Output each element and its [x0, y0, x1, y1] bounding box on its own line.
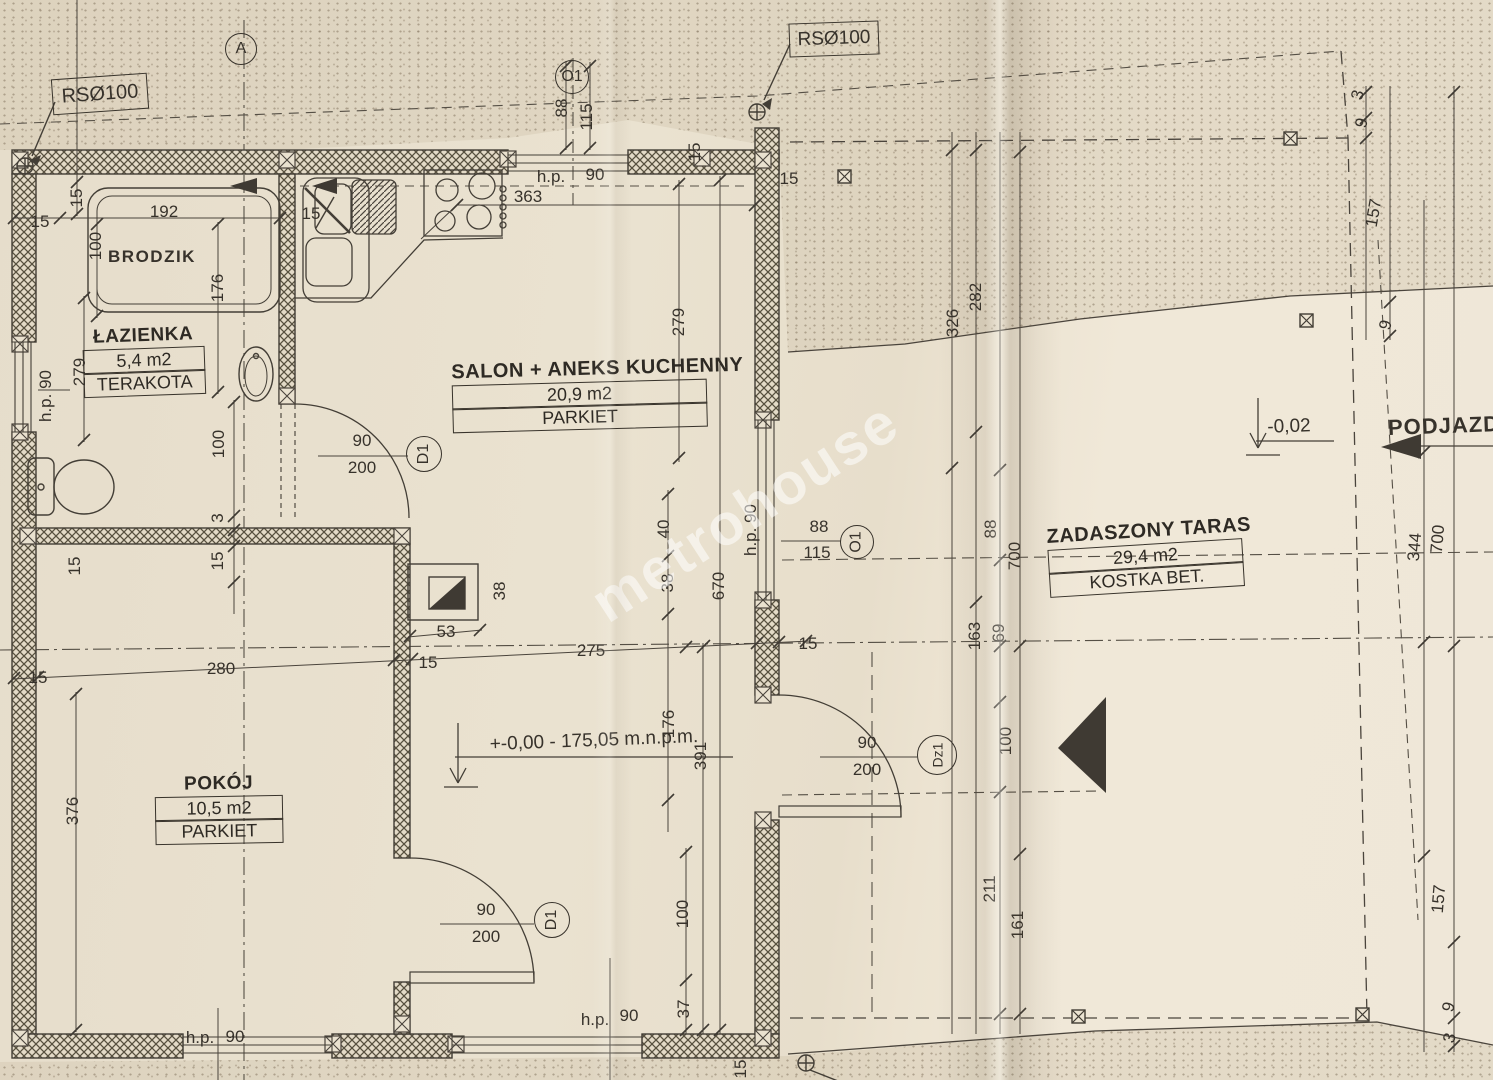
dimension-label: 157 — [1428, 884, 1450, 914]
dimension-label: 363 — [514, 187, 542, 207]
dimension-label: 275 — [577, 641, 605, 661]
dimension-label: 100 — [86, 232, 106, 260]
dimension-label: 163 — [965, 622, 985, 650]
dimension-label: 326 — [943, 309, 963, 337]
door-width-label: 90 — [858, 733, 877, 753]
axis-marker-d1: D1 — [534, 902, 570, 938]
axis-marker-label: D1 — [415, 444, 433, 464]
door-height-label: 200 — [348, 458, 376, 478]
dimension-label: 15 — [419, 653, 438, 673]
room-label-taras: ZADASZONY TARAS 29,4 m2 KOSTKA BET. — [1046, 514, 1245, 598]
dimension-label: 100 — [673, 900, 693, 928]
dimension-label: 15 — [302, 204, 321, 224]
dimension-label: 9 — [1375, 318, 1397, 332]
room-label-salon: SALON + ANEKS KUCHENNY 20,9 m2 PARKIET — [451, 355, 708, 434]
axis-marker-label: Dz1 — [929, 743, 945, 768]
dimension-label: 3 — [1439, 1031, 1461, 1045]
dimension-label: 9 — [1351, 116, 1373, 130]
axis-marker-a: A — [225, 33, 257, 65]
dimension-label: h.p. — [186, 1028, 214, 1048]
dimension-label: 670 — [709, 572, 729, 600]
dimension-label: 15 — [31, 212, 50, 232]
dimension-label: 391 — [691, 742, 711, 770]
dimension-label: 90 — [586, 165, 605, 185]
door-height-label: 200 — [472, 927, 500, 947]
dimension-label: 192 — [150, 202, 178, 222]
room-name: ŁAZIENKA — [82, 323, 205, 349]
dimension-label: h.p. 90 — [36, 370, 56, 422]
axis-marker-label: D1 — [543, 910, 561, 930]
dimension-label: 90 — [620, 1006, 639, 1026]
dimension-label: 15 — [731, 1060, 751, 1079]
dimension-label: h.p. — [581, 1010, 609, 1030]
dimension-label: 15 — [799, 634, 818, 654]
door-height-label: 200 — [853, 760, 881, 780]
axis-marker-label: O1 — [561, 68, 582, 86]
dimension-label: h.p. — [537, 167, 565, 187]
axis-marker-d1: D1 — [406, 436, 442, 472]
drain-label-top-left: RSØ100 — [51, 73, 149, 116]
dimension-label: 280 — [207, 659, 235, 679]
door-width-label: 90 — [477, 900, 496, 920]
dimension-label: 3 — [1347, 88, 1369, 102]
dimension-label: 279 — [669, 308, 689, 336]
axis-marker-dz1: Dz1 — [917, 735, 957, 775]
dimension-label: 37 — [674, 1000, 694, 1019]
axis-marker-label: O1 — [848, 531, 866, 552]
elevation-label-terrace: -0,02 — [1267, 415, 1311, 438]
dimension-label: 88 — [810, 517, 829, 537]
dimension-label: 15 — [67, 189, 87, 208]
dimension-label: 69 — [989, 624, 1009, 643]
dimension-label: 88 — [981, 520, 1001, 539]
room-floor: PARKIET — [155, 818, 283, 845]
floor-plan-photo: RSØ100 RSØ100 BRODZIK ŁAZIENKA 5,4 m2 TE… — [0, 0, 1493, 1080]
dimension-label: 3 — [208, 513, 228, 522]
dimension-label: 115 — [577, 103, 597, 130]
dimension-label: 161 — [1008, 911, 1028, 939]
dimension-label: 700 — [1427, 524, 1449, 554]
axis-marker-o1: O1 — [840, 525, 874, 559]
dimension-label: 15 — [685, 143, 705, 162]
dimension-label: 88 — [552, 99, 572, 118]
dimension-label: 90 — [226, 1027, 245, 1047]
dimension-label: 53 — [437, 622, 456, 642]
axis-marker-label: A — [236, 40, 247, 58]
dimension-label: 157 — [1362, 197, 1387, 228]
dimension-label: 279 — [70, 358, 90, 386]
dimension-label: 15 — [65, 557, 85, 576]
dimension-label: 282 — [966, 283, 986, 311]
dimension-label: 15 — [29, 668, 48, 688]
dimension-label: 176 — [659, 710, 679, 738]
dimension-label: 38 — [490, 582, 510, 601]
dimension-label: 700 — [1005, 542, 1025, 570]
drain-label-top-right: RSØ100 — [788, 20, 879, 57]
dimension-label: 344 — [1404, 532, 1426, 562]
room-name: POKÓJ — [154, 772, 282, 796]
shower-tray-label: BRODZIK — [108, 247, 196, 267]
podjazd-label: PODJAZD — [1388, 411, 1493, 441]
dimension-label: 176 — [208, 274, 228, 302]
room-floor: PARKIET — [452, 402, 708, 434]
dimension-label: 115 — [803, 543, 830, 563]
room-floor: TERAKOTA — [83, 369, 206, 398]
room-label-pokoj: POKÓJ 10,5 m2 PARKIET — [154, 772, 283, 846]
dimension-label: 9 — [1438, 1000, 1460, 1014]
dimension-label: 211 — [980, 875, 1000, 902]
dimension-label: 15 — [208, 552, 228, 571]
door-width-label: 90 — [353, 431, 372, 451]
dimension-label: 376 — [63, 797, 83, 825]
dimension-label: 100 — [996, 727, 1016, 755]
axis-marker-o1: O1 — [555, 60, 589, 94]
room-label-lazienka: ŁAZIENKA 5,4 m2 TERAKOTA — [82, 323, 206, 399]
dimension-label: 15 — [780, 169, 799, 189]
dimension-label: 100 — [209, 430, 229, 458]
